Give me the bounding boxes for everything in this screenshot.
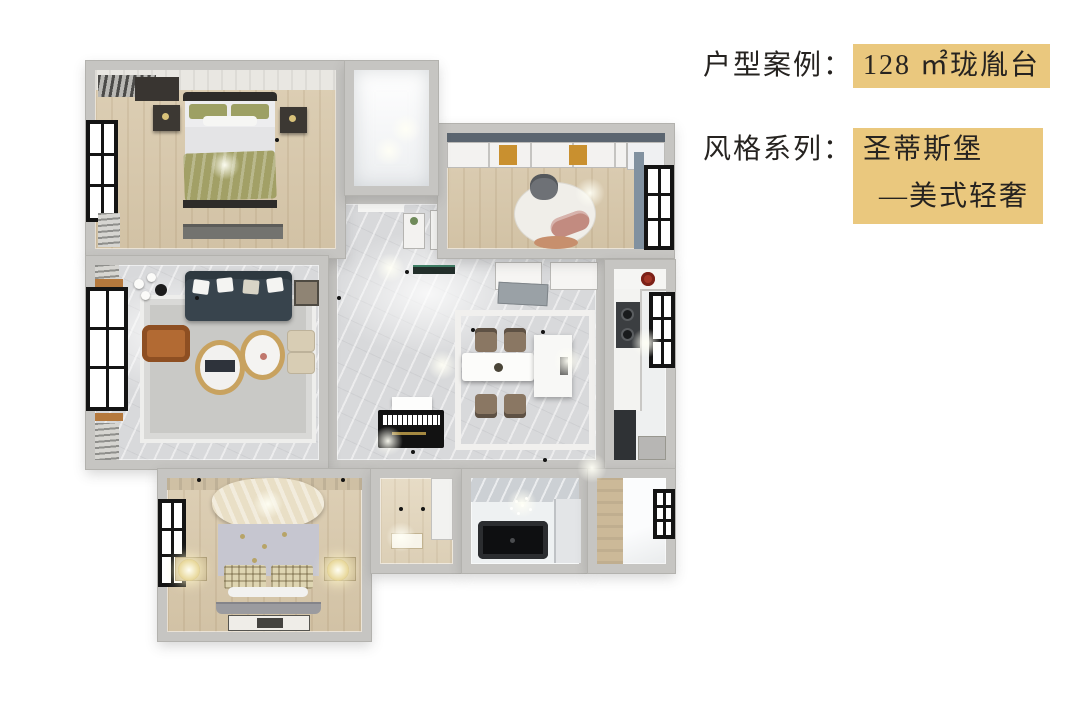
decal-dot [252, 558, 257, 563]
room-closet [345, 61, 438, 195]
range-hood [497, 282, 548, 307]
entry-threshold [358, 204, 404, 212]
plaid-pillow [271, 565, 313, 589]
wardrobe-dark [135, 77, 179, 101]
style-sub-name: —美式轻奢 [863, 179, 1029, 214]
headboard [183, 92, 277, 101]
room-second-bedroom [158, 469, 371, 641]
room-living [86, 256, 328, 469]
room-master-bedroom [86, 61, 345, 258]
decal-dot [282, 532, 287, 537]
case-label: 户型案例： [703, 44, 853, 83]
table-lamp [327, 559, 349, 581]
master-window [86, 120, 118, 222]
bath-counter [554, 499, 581, 563]
drain-icon [510, 538, 515, 543]
study-window [644, 165, 674, 250]
living-window [86, 287, 128, 411]
blanket [183, 150, 277, 201]
downlight-dot [543, 458, 547, 462]
caption-line-1: 户型案例： 128 ㎡珑胤台 [703, 44, 1050, 88]
pendant-lamp-icon [134, 279, 144, 289]
wardrobe [431, 478, 453, 540]
downlight-dot [195, 296, 199, 300]
sofa-cushion [216, 277, 233, 293]
lamp-icon [162, 113, 169, 120]
downlight-dot [197, 478, 201, 482]
accent-rug [534, 236, 578, 249]
dining-table [462, 353, 534, 381]
foot-rug [228, 615, 310, 631]
bolster-pillow [228, 587, 308, 597]
downlight-dot [275, 138, 279, 142]
coffee-table [240, 330, 285, 380]
style-series-name: 圣蒂斯堡 [863, 132, 1029, 167]
ottoman [287, 330, 315, 352]
study-top-wall-band [447, 133, 665, 142]
plant-icon [410, 217, 418, 225]
footboard [183, 200, 277, 208]
armchair [142, 325, 190, 362]
nightstand [280, 107, 307, 133]
downlight-dot [337, 296, 341, 300]
dining-chair [475, 394, 497, 418]
table-lamp [178, 559, 200, 581]
wreath-icon [641, 272, 655, 286]
room-balcony [588, 469, 675, 573]
room-dressing [371, 469, 462, 573]
nightstand [153, 105, 180, 131]
ac-vent [413, 265, 455, 274]
decal-dot [262, 544, 267, 549]
sofa-cushion [266, 277, 284, 293]
downlight-dot [411, 450, 415, 454]
style-value-highlighted: 圣蒂斯堡 —美式轻奢 [853, 128, 1043, 224]
dining-chair [504, 328, 526, 352]
burner-icon [621, 308, 634, 321]
window-sill [95, 279, 123, 287]
flower-icon [260, 353, 267, 360]
pendant-lamp-icon [147, 273, 156, 282]
poster-canvas: 户型案例： 128 ㎡珑胤台 风格系列： 圣蒂斯堡 —美式轻奢 [0, 0, 1080, 703]
island-sink [560, 357, 568, 375]
plaid-pillow [224, 565, 266, 589]
kitchen-window [649, 292, 675, 368]
entry-cabinet [403, 213, 425, 249]
desk-cabinet-row [447, 142, 627, 168]
sofa [185, 271, 292, 321]
case-value-highlighted: 128 ㎡珑胤台 [853, 44, 1050, 88]
balcony-window [653, 489, 675, 539]
second-bed [216, 478, 321, 614]
kitchen-island [534, 335, 572, 397]
floor-tray [391, 533, 423, 549]
room-kitchen [605, 260, 675, 469]
floorplan-render [75, 28, 685, 648]
ceiling-light-glow [374, 136, 404, 166]
sofa-cushion [192, 279, 210, 295]
wood-wall-panel [597, 478, 623, 564]
downlight-dot [399, 507, 403, 511]
kitchen-upper-cabinet [550, 262, 598, 290]
downlight-dot [405, 270, 409, 274]
base-cabinet [638, 436, 666, 460]
downlight-dot [471, 328, 475, 332]
cabinet-accent [499, 145, 517, 165]
dining-chair [504, 394, 526, 418]
room-study-bedroom [438, 124, 674, 258]
cooktop [616, 302, 640, 348]
downlight-dot [341, 478, 345, 482]
kitchen-counter [614, 269, 666, 291]
decal-dot [240, 534, 245, 539]
piano-detail [392, 432, 426, 435]
sofa-cushion [242, 279, 259, 294]
downlight-dot [421, 507, 425, 511]
curtain-lower [98, 213, 120, 247]
pendant-lamp-icon [155, 284, 167, 296]
master-bed [183, 92, 277, 208]
bathtub [478, 521, 548, 559]
dining-chair [475, 328, 497, 352]
headboard [216, 602, 321, 614]
ottoman [287, 352, 315, 374]
style-label: 风格系列： [703, 128, 853, 167]
burner-icon [621, 328, 634, 341]
caption-line-2: 风格系列： 圣蒂斯堡 —美式轻奢 [703, 128, 1050, 224]
sparkle-decor [515, 500, 518, 503]
tall-cabinet [614, 410, 636, 460]
piano [378, 410, 444, 448]
desk-chair [530, 174, 558, 200]
table-centerpiece [494, 363, 503, 372]
room-bathroom [462, 469, 588, 573]
caption-block: 户型案例： 128 ㎡珑胤台 风格系列： 圣蒂斯堡 —美式轻奢 [703, 44, 1050, 224]
rug-center [257, 618, 283, 628]
lamp-icon [289, 115, 296, 122]
shutter [95, 423, 119, 460]
tv-console [183, 224, 283, 239]
curtain [634, 152, 644, 249]
window-sill [95, 413, 123, 421]
table-tray [205, 360, 235, 372]
pillow [203, 116, 257, 126]
pendant-lamp-icon [141, 291, 150, 300]
downlight-dot [541, 330, 545, 334]
piano-bench [392, 397, 432, 410]
cabinet-accent [569, 145, 587, 165]
side-table [294, 280, 319, 306]
piano-keys [382, 415, 440, 425]
coffee-table [195, 340, 245, 395]
